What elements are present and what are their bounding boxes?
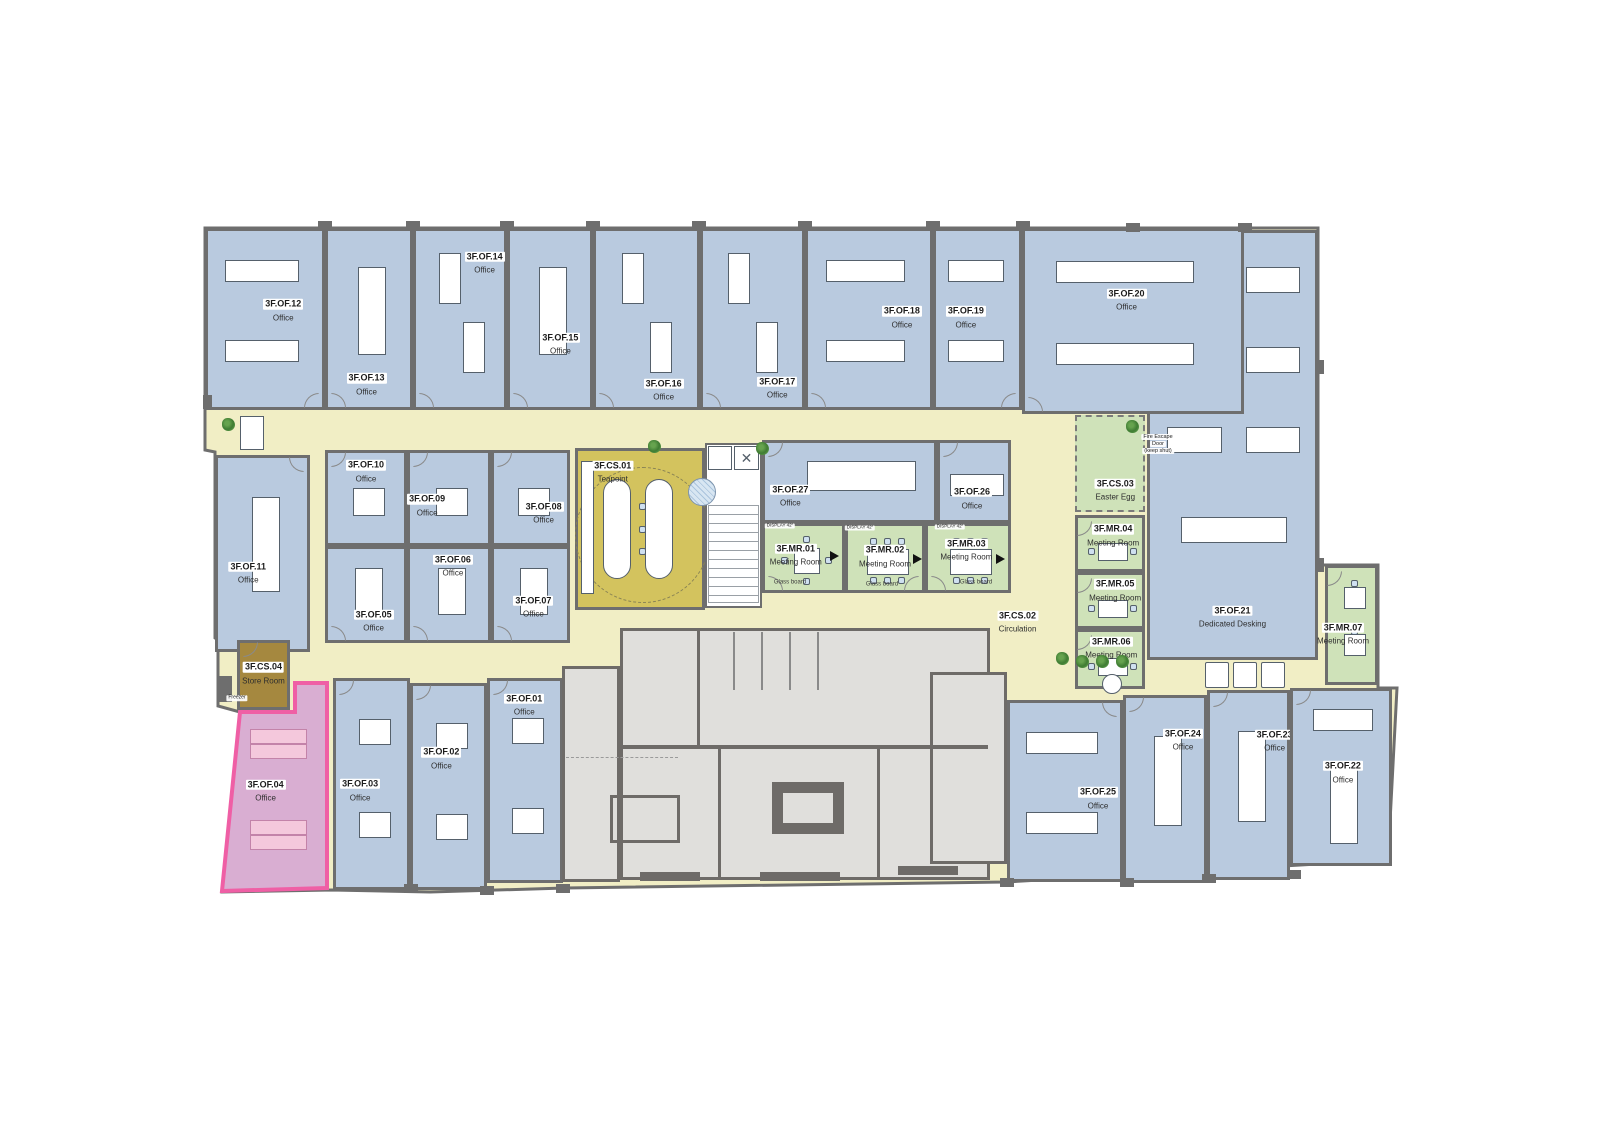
room-type-label: Office <box>421 761 461 770</box>
room-3f-of-08: 3F.OF.08Office <box>491 450 570 546</box>
room-3f-of-01: 3F.OF.01Office <box>487 678 563 883</box>
wall-column <box>1287 870 1301 879</box>
wall-column <box>1120 878 1134 887</box>
teapoint-table <box>603 479 631 579</box>
wall-column <box>318 221 332 230</box>
desk <box>1167 427 1222 453</box>
chair <box>781 557 788 564</box>
room-3f-of-02: 3F.OF.02Office <box>410 683 487 890</box>
room-code: 3F.OF.06 <box>433 554 473 564</box>
room-code: 3F.OF.01 <box>504 694 544 704</box>
desk <box>728 253 750 304</box>
room-label-3f-mr-06: 3F.MR.06Meeting Room <box>1085 632 1137 661</box>
desk <box>438 568 466 615</box>
plant-icon <box>1116 655 1129 668</box>
door-arc <box>419 393 434 408</box>
desk <box>948 260 1003 282</box>
wall-column <box>1202 874 1216 883</box>
door-arc <box>904 576 919 591</box>
annotation-text: Glass board <box>960 580 992 587</box>
wall-column <box>500 221 514 230</box>
room-type-label: Office <box>354 624 394 633</box>
desk <box>225 260 299 282</box>
room-type-label: Office <box>757 391 797 400</box>
round-table <box>1102 674 1122 694</box>
chair <box>981 538 988 545</box>
room-3f-cs-01: 3F.CS.01Teapoint <box>575 448 705 610</box>
core-wall <box>640 872 700 881</box>
room-3f-of-10: 3F.OF.10Office <box>325 450 407 546</box>
door-arc <box>331 393 346 408</box>
lounge-chair <box>1233 662 1257 688</box>
desk <box>250 820 307 835</box>
desk <box>463 322 485 373</box>
room-type-label: Office <box>770 499 810 508</box>
core-wall <box>718 747 721 877</box>
toilet-partition <box>733 632 735 690</box>
desk <box>1026 812 1098 834</box>
room-3f-of-27: 3F.OF.27Office <box>762 440 937 523</box>
room-label-3f-of-18: 3F.OF.18Office <box>882 301 922 330</box>
wall-column <box>404 884 418 893</box>
door-arc <box>1102 702 1117 717</box>
wall-column <box>1315 558 1324 572</box>
door-arc <box>768 442 783 457</box>
room-3f-of-06: 3F.OF.06Office <box>407 546 491 643</box>
room-3f-of-04: 3F.OF.04Office <box>228 683 327 891</box>
chair <box>898 538 905 545</box>
wall-column <box>586 221 600 230</box>
desk <box>539 267 567 354</box>
room-type-label: Office <box>1078 801 1118 810</box>
arrow-icon <box>996 554 1005 564</box>
room-3f-of-09: 3F.OF.09Office <box>407 450 491 546</box>
room-label-3f-of-12: 3F.OF.12Office <box>263 294 303 323</box>
annotation-text: Fire Escape <box>1141 434 1174 440</box>
core-wall <box>622 745 988 749</box>
core-area <box>930 672 1007 864</box>
chair <box>1088 548 1095 555</box>
room-3f-cs-02: 3F.CS.02Circulation <box>975 603 1060 637</box>
toilet-partition <box>761 632 763 690</box>
desk <box>1181 517 1287 543</box>
chair <box>639 526 646 533</box>
room-3f-of-11: 3F.OF.11Office <box>215 455 310 652</box>
room-type-label: Office <box>524 516 564 525</box>
plant-icon <box>1126 420 1139 433</box>
teapoint-table <box>645 479 673 579</box>
room-3f-of-17: 3F.OF.17Office <box>700 228 805 410</box>
room-type-label: Office <box>347 387 387 396</box>
plant-icon <box>222 418 235 431</box>
annotation-text: DISPLAY 42" <box>935 525 965 530</box>
door-arc <box>1327 571 1342 586</box>
room-label-3f-of-03: 3F.OF.03Office <box>340 774 380 803</box>
room-code: 3F.OF.12 <box>263 299 303 309</box>
room-type-label: Office <box>504 708 544 717</box>
chair <box>1088 605 1095 612</box>
door-arc <box>497 452 512 467</box>
door-arc <box>413 452 428 467</box>
room-type-label: Office <box>946 321 986 330</box>
wall-column <box>1126 223 1140 232</box>
room-type-label: Office <box>346 474 386 483</box>
chair <box>639 503 646 510</box>
door-arc <box>304 393 319 408</box>
desk <box>436 723 468 749</box>
plant-icon <box>648 440 661 453</box>
door-arc <box>1213 692 1228 707</box>
desk <box>512 718 544 744</box>
stair-outline <box>610 795 680 843</box>
desk <box>359 719 391 745</box>
door-arc <box>331 626 346 641</box>
room-label-3f-of-13: 3F.OF.13Office <box>347 368 387 397</box>
room-type-label: Easter Egg <box>1095 493 1136 502</box>
desk <box>1246 427 1301 453</box>
room-code: 3F.OF.16 <box>644 378 684 388</box>
door-arc <box>1129 697 1144 712</box>
room-code: 3F.CS.03 <box>1095 478 1136 488</box>
room-3f-of-23: 3F.OF.23Office <box>1207 690 1290 880</box>
desk <box>1313 709 1372 731</box>
room-3f-of-24: 3F.OF.24Office <box>1123 695 1207 883</box>
door-arc <box>1077 521 1092 536</box>
door-arc <box>493 680 508 695</box>
door-arc <box>931 576 946 591</box>
desk <box>250 744 307 759</box>
wall-column <box>692 221 706 230</box>
desk <box>867 549 909 575</box>
chair <box>803 536 810 543</box>
desk <box>1056 261 1194 283</box>
door-arc <box>339 680 354 695</box>
chair <box>967 538 974 545</box>
room-label-3f-of-19: 3F.OF.19Office <box>946 301 986 330</box>
room-3f-of-20: 3F.OF.20Office <box>1022 228 1244 414</box>
lounge-chair <box>1205 662 1229 688</box>
room-code: 3F.OF.19 <box>946 306 986 316</box>
desk <box>225 340 299 362</box>
toilet-partition <box>817 632 819 690</box>
room-code: 3F.OF.21 <box>1212 605 1252 615</box>
room-label-3f-of-01: 3F.OF.01Office <box>504 689 544 718</box>
wall-column <box>406 221 420 230</box>
room-3f-of-25: 3F.OF.25Office <box>1007 700 1123 882</box>
room-type-label: Dedicated Desking <box>1199 620 1266 629</box>
annotation-text: DISPLAY 42" <box>765 524 795 529</box>
core-dashed-line <box>566 757 678 758</box>
chair <box>953 538 960 545</box>
room-code: 3F.OF.27 <box>770 485 810 495</box>
desk <box>756 322 778 373</box>
room-type-label: Office <box>465 266 505 275</box>
wall-column <box>480 886 494 895</box>
desk <box>1344 634 1366 656</box>
annotation-text: Door <box>1150 441 1166 447</box>
corridor-cabinet <box>240 416 264 450</box>
room-3f-of-22: 3F.OF.22Office <box>1290 688 1392 866</box>
room-3f-of-13: 3F.OF.13Office <box>325 228 413 410</box>
room-code: 3F.OF.17 <box>757 377 797 387</box>
desk <box>436 488 468 516</box>
annotation-text: (keep shut) <box>1142 448 1174 454</box>
desk <box>252 497 280 592</box>
stairs <box>708 505 759 603</box>
room-type-label: Office <box>882 321 922 330</box>
desk <box>1344 587 1366 609</box>
plant-icon <box>1076 655 1089 668</box>
room-code: 3F.OF.14 <box>465 252 505 262</box>
round-table <box>688 478 716 506</box>
room-label-3f-of-14: 3F.OF.14Office <box>465 247 505 276</box>
room-3f-of-15: 3F.OF.15Office <box>507 228 593 410</box>
desk <box>355 568 383 615</box>
chair <box>1130 605 1137 612</box>
desk <box>826 260 905 282</box>
desk <box>1098 600 1128 618</box>
plant-icon <box>1096 655 1109 668</box>
core-wall <box>760 872 840 881</box>
chair <box>1351 628 1358 635</box>
door-arc <box>413 626 428 641</box>
room-code: 3F.MR.04 <box>1092 524 1135 534</box>
room-code: 3F.OF.04 <box>246 780 286 790</box>
room-3f-of-12: 3F.OF.12Office <box>205 228 325 410</box>
room-type-label: Office <box>246 794 286 803</box>
door-arc <box>811 393 826 408</box>
core-area <box>562 666 620 882</box>
room-3f-mr-05: 3F.MR.05Meeting Room <box>1075 572 1145 629</box>
arrow-icon <box>913 554 922 564</box>
annotation-text: DISPLAY 42" <box>845 526 875 531</box>
desk <box>518 488 550 516</box>
room-3f-of-07: 3F.OF.07Office <box>491 546 570 643</box>
annotation-text: Glass board <box>774 580 806 587</box>
room-3f-mr-07: 3F.MR.07Meeting Room <box>1325 565 1378 685</box>
room-code: 3F.CS.04 <box>243 662 284 672</box>
desk <box>650 322 672 373</box>
desk <box>1056 343 1194 365</box>
room-type-label: Office <box>263 314 303 323</box>
door-arc <box>599 393 614 408</box>
annotation-text: Glass board <box>866 582 898 589</box>
desk <box>512 808 544 834</box>
kitchen-counter <box>581 461 594 594</box>
core-wall <box>877 747 880 877</box>
room-label-3f-cs-03: 3F.CS.03Easter Egg <box>1095 473 1136 502</box>
chair <box>1351 580 1358 587</box>
desk <box>950 549 992 575</box>
room-3f-of-19: 3F.OF.19Office <box>933 228 1022 410</box>
room-label-3f-of-17: 3F.OF.17Office <box>757 372 797 401</box>
door-arc <box>1296 690 1311 705</box>
door-arc <box>943 442 958 457</box>
desk <box>359 812 391 838</box>
desk <box>1098 543 1128 561</box>
door-arc <box>416 685 431 700</box>
room-type-label: Office <box>1107 303 1147 312</box>
room-code: 3F.CS.02 <box>997 611 1038 621</box>
desk <box>1330 769 1358 844</box>
desk <box>1246 347 1301 373</box>
lift-core <box>772 782 844 834</box>
room-3f-of-26: 3F.OF.26Office <box>937 440 1011 523</box>
desk <box>948 340 1003 362</box>
chair <box>639 548 646 555</box>
room-label-3f-cs-04: 3F.CS.04Store Room <box>242 657 285 686</box>
room-label-3f-mr-05: 3F.MR.05Meeting Room <box>1089 574 1141 603</box>
chair <box>898 577 905 584</box>
door-arc <box>497 626 512 641</box>
room-type-label: Office <box>340 793 380 802</box>
room-code: 3F.MR.05 <box>1094 579 1137 589</box>
wall-column <box>798 221 812 230</box>
door-arc <box>1028 397 1043 412</box>
chair <box>884 538 891 545</box>
room-label-3f-cs-02: 3F.CS.02Circulation <box>997 606 1038 635</box>
wall-column <box>1238 223 1252 232</box>
door-arc <box>513 393 528 408</box>
desk <box>250 729 307 744</box>
door-arc <box>1077 635 1092 650</box>
room-3f-of-05: 3F.OF.05Office <box>325 546 407 643</box>
room-type-label: Office <box>644 393 684 402</box>
door-arc <box>243 642 258 657</box>
desk <box>439 253 461 304</box>
room-type-label: Circulation <box>997 625 1038 634</box>
core-wall <box>697 630 700 745</box>
wall-column <box>1315 360 1324 374</box>
desk <box>794 548 820 574</box>
room-code: 3F.MR.06 <box>1090 637 1133 647</box>
shaft-box <box>708 446 732 470</box>
room-label-3f-of-20: 3F.OF.20Office <box>1107 283 1147 312</box>
room-code: 3F.MR.07 <box>1322 623 1365 633</box>
room-label-3f-of-25: 3F.OF.25Office <box>1078 782 1118 811</box>
desk <box>807 461 916 491</box>
room-code: 3F.OF.18 <box>882 306 922 316</box>
room-type-label: Office <box>952 501 992 510</box>
desk <box>1154 736 1182 826</box>
desk <box>520 568 548 615</box>
desk <box>950 474 1003 496</box>
chair <box>1130 548 1137 555</box>
plant-icon <box>1056 652 1069 665</box>
room-label-3f-of-27: 3F.OF.27Office <box>770 480 810 509</box>
room-code: 3F.OF.10 <box>346 460 386 470</box>
door-arc <box>1077 578 1092 593</box>
lounge-chair <box>1261 662 1285 688</box>
door-arc <box>289 457 304 472</box>
arrow-icon <box>830 551 839 561</box>
wall-column <box>1000 878 1014 887</box>
room-label-3f-of-04: 3F.OF.04Office <box>246 775 286 804</box>
room-label-3f-of-16: 3F.OF.16Office <box>644 373 684 402</box>
annotation-text: Freezer <box>226 695 247 701</box>
room-3f-of-18: 3F.OF.18Office <box>805 228 933 410</box>
room-3f-of-03: 3F.OF.03Office <box>333 678 410 890</box>
desk <box>622 253 644 304</box>
chair <box>1130 663 1137 670</box>
core-wall <box>898 866 958 875</box>
chair <box>870 538 877 545</box>
desk <box>1238 731 1266 822</box>
desk <box>353 488 385 516</box>
door-arc <box>706 393 721 408</box>
chair <box>1088 663 1095 670</box>
wall-column <box>1016 221 1030 230</box>
room-3f-of-16: 3F.OF.16Office <box>593 228 700 410</box>
door-arc <box>331 452 346 467</box>
toilet-partition <box>789 632 791 690</box>
wall-column <box>926 221 940 230</box>
desk <box>1246 267 1301 293</box>
room-label-3f-of-10: 3F.OF.10Office <box>346 455 386 484</box>
desk <box>436 814 468 840</box>
desk <box>826 340 905 362</box>
room-code: 3F.OF.03 <box>340 779 380 789</box>
room-code: 3F.OF.20 <box>1107 288 1147 298</box>
plant-icon <box>756 442 769 455</box>
wall-column <box>556 884 570 893</box>
desk <box>1026 732 1098 754</box>
door-arc <box>1001 393 1016 408</box>
room-3f-mr-04: 3F.MR.04Meeting Room <box>1075 515 1145 572</box>
desk <box>250 835 307 850</box>
wall-column <box>203 395 212 409</box>
room-code: 3F.OF.25 <box>1078 787 1118 797</box>
desk <box>358 267 386 354</box>
floor-plan: 3F.OF.21Dedicated Desking3F.OF.12Office3… <box>0 0 1600 1131</box>
room-code: 3F.OF.13 <box>347 373 387 383</box>
room-label-3f-of-21: 3F.OF.21Dedicated Desking <box>1199 600 1266 629</box>
room-3f-of-14: 3F.OF.14Office <box>413 228 507 410</box>
